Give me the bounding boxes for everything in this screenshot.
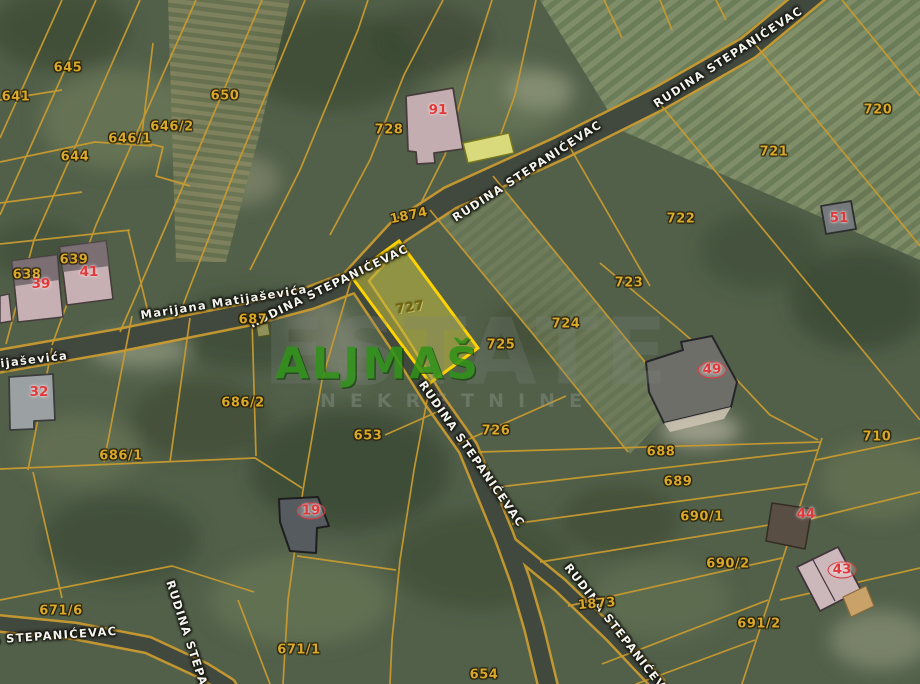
watermark-tagline: NEKRETNINE xyxy=(320,390,596,412)
watermark-brand: ALJMAŠ xyxy=(275,339,481,390)
map-canvas: ESTATE NEKRETNINE ALJMAŠ RUDINA STEPANIĆ… xyxy=(0,0,920,684)
building-51 xyxy=(821,201,856,234)
building-44 xyxy=(766,503,812,549)
